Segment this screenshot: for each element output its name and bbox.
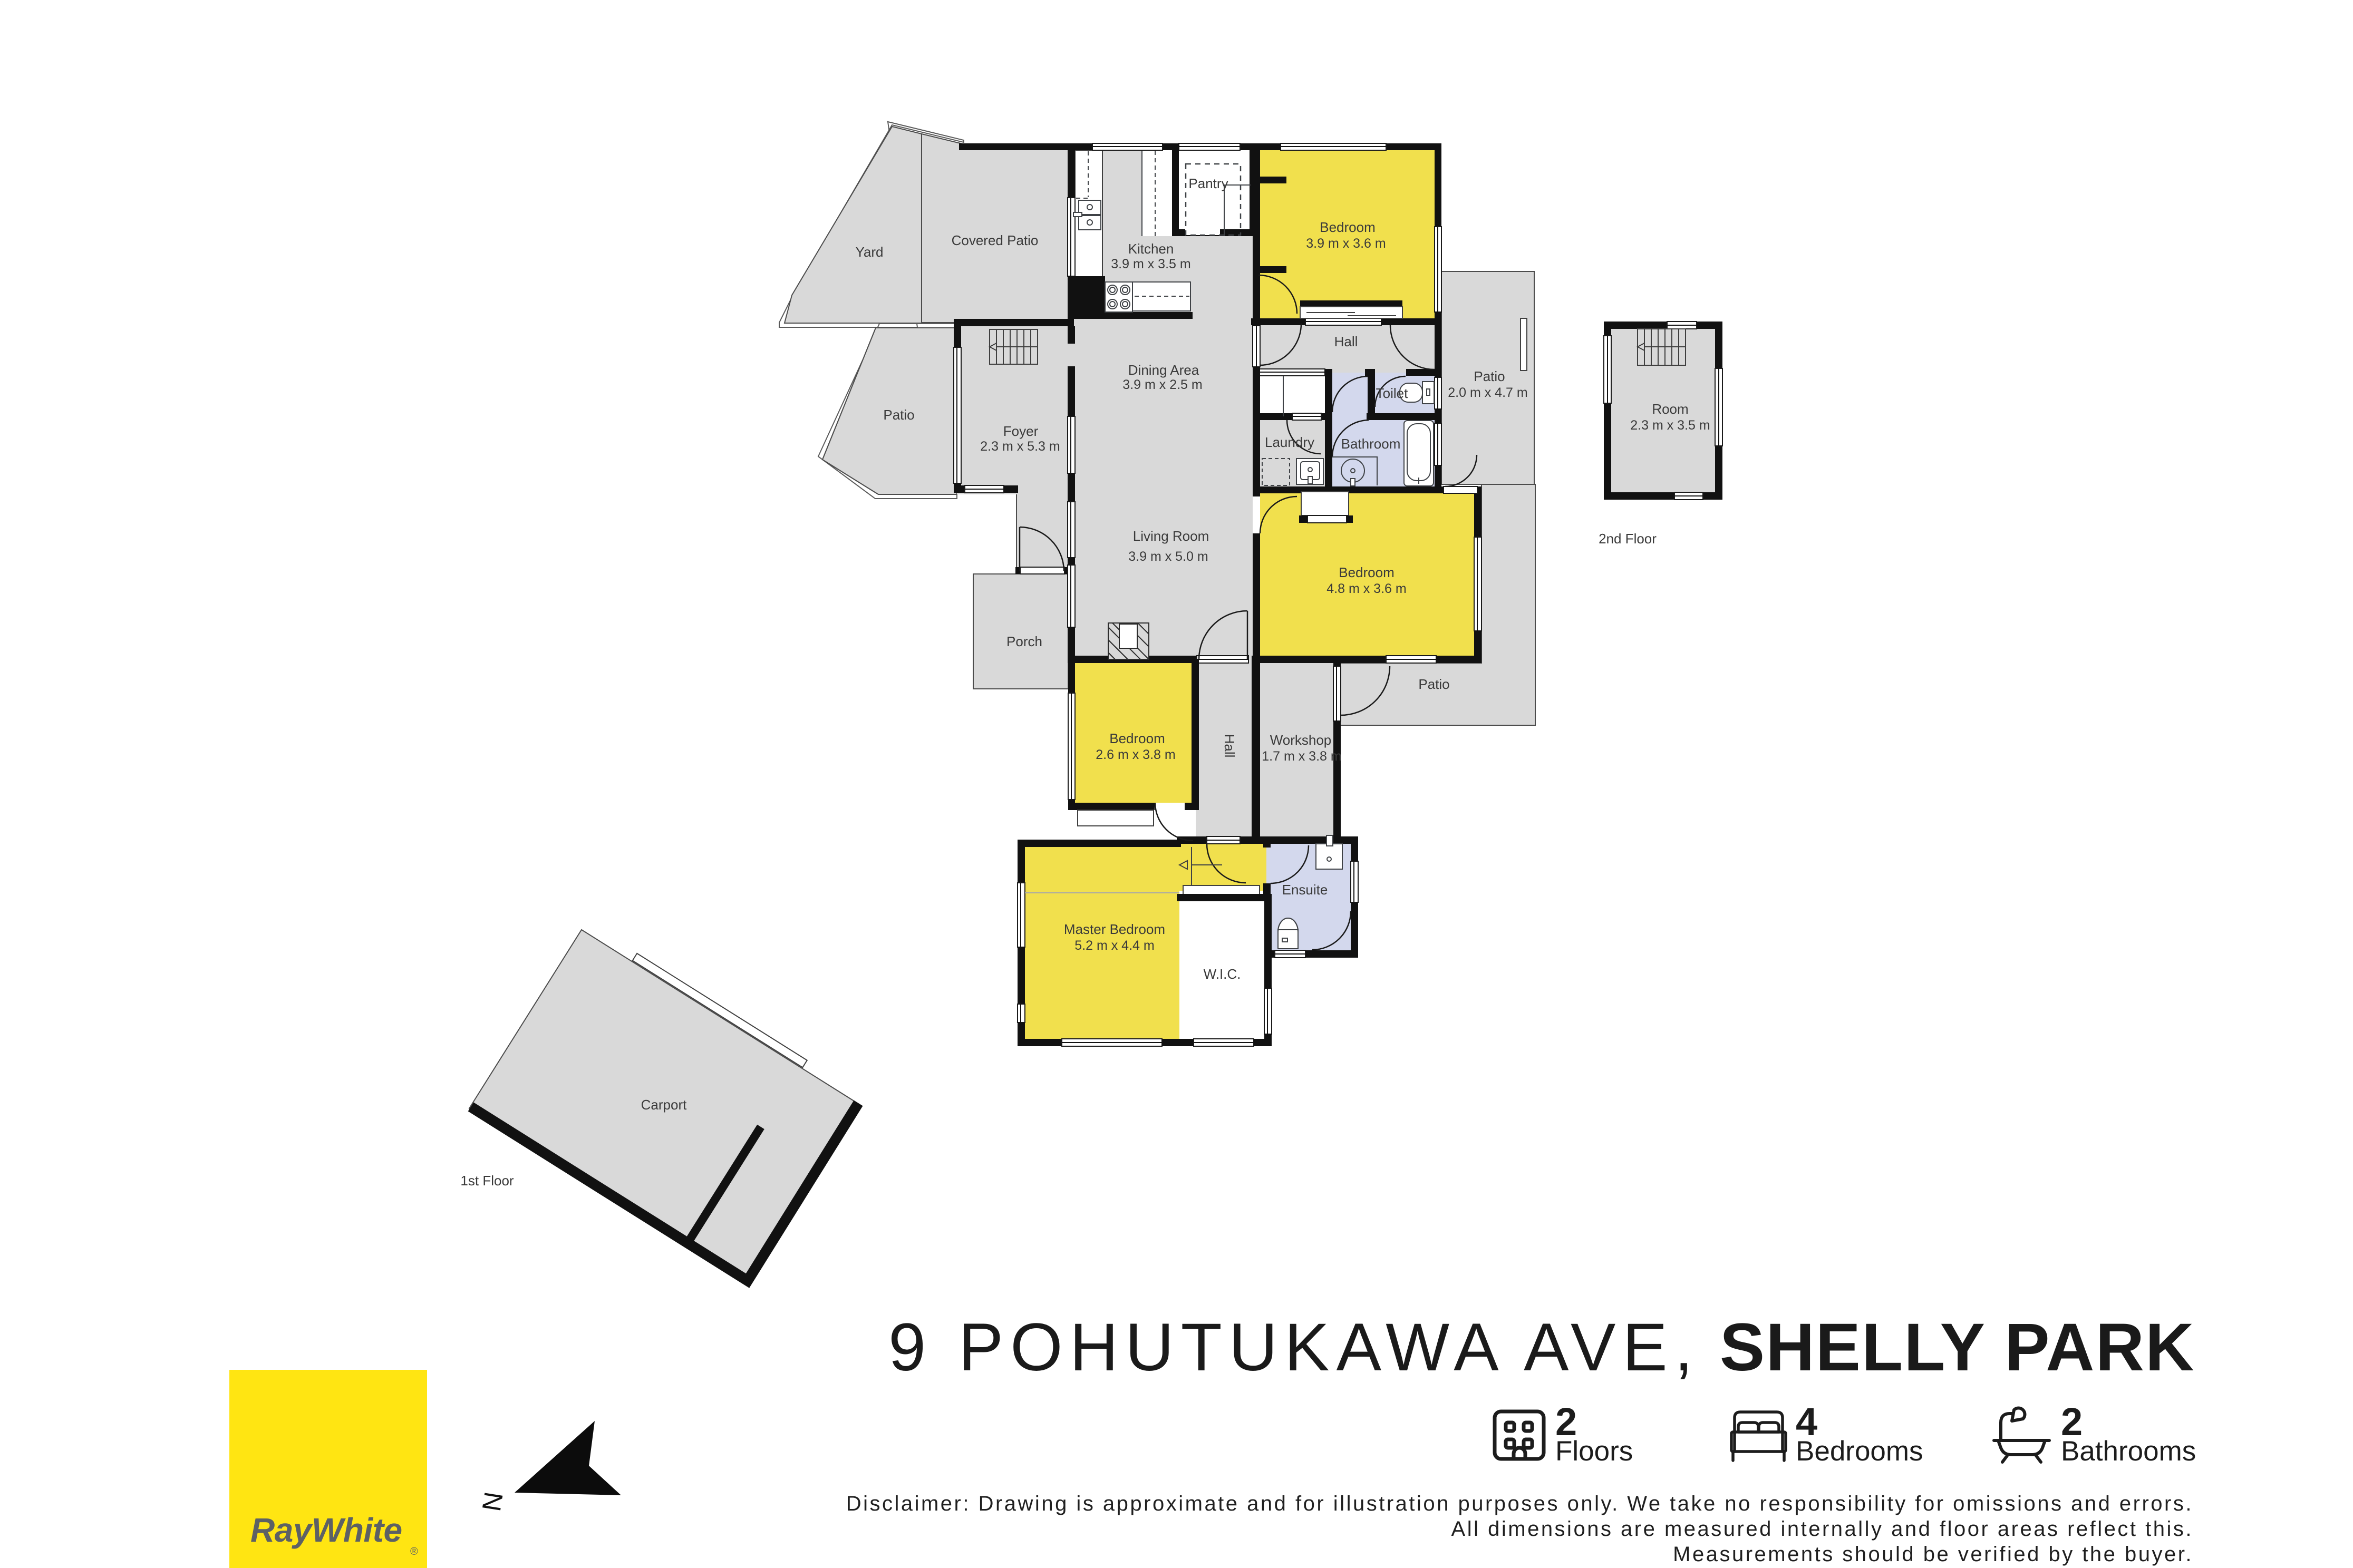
svg-text:Bedrooms: Bedrooms (1796, 1436, 1923, 1467)
svg-text:Living Room: Living Room (1133, 528, 1209, 544)
svg-text:Patio: Patio (883, 407, 914, 423)
svg-text:2.6 m x 3.8 m: 2.6 m x 3.8 m (1096, 747, 1175, 762)
svg-text:®: ® (410, 1546, 418, 1557)
svg-text:Hall: Hall (1334, 334, 1358, 349)
svg-text:1st Floor: 1st Floor (460, 1173, 514, 1189)
svg-text:All dimensions are measured in: All dimensions are measured internally a… (1451, 1517, 2193, 1541)
svg-text:RayWhite: RayWhite (250, 1511, 402, 1549)
svg-text:3.9 m x 2.5 m: 3.9 m x 2.5 m (1122, 377, 1202, 392)
svg-text:Ensuite: Ensuite (1282, 882, 1328, 898)
svg-text:3.9 m x 3.5 m: 3.9 m x 3.5 m (1111, 257, 1190, 271)
svg-text:3.9 m x 5.0 m: 3.9 m x 5.0 m (1128, 549, 1208, 564)
svg-text:2.0 m x 4.7 m: 2.0 m x 4.7 m (1448, 385, 1527, 400)
svg-text:3.9 m x 3.6 m: 3.9 m x 3.6 m (1306, 236, 1386, 251)
svg-text:2.3 m x 5.3 m: 2.3 m x 5.3 m (980, 439, 1060, 454)
svg-text:Covered Patio: Covered Patio (952, 232, 1039, 248)
svg-text:Disclaimer: Drawing is approxi: Disclaimer: Drawing is approximate and f… (846, 1492, 2193, 1515)
svg-text:Pantry: Pantry (1188, 176, 1228, 191)
svg-text:Dining Area: Dining Area (1128, 362, 1199, 378)
svg-text:Bathroom: Bathroom (1341, 436, 1401, 452)
svg-text:5.2 m x 4.4 m: 5.2 m x 4.4 m (1074, 938, 1154, 953)
svg-text:Bathrooms: Bathrooms (2061, 1436, 2196, 1467)
svg-text:Foyer: Foyer (1003, 423, 1039, 439)
svg-text:Room: Room (1652, 401, 1688, 417)
svg-text:Yard: Yard (856, 244, 884, 260)
svg-text:Patio: Patio (1474, 368, 1505, 384)
svg-text:Floors: Floors (1555, 1436, 1633, 1467)
svg-text:9 POHUTUKAWA AVE, SHELLY PARK: 9 POHUTUKAWA AVE, SHELLY PARK (888, 1310, 2195, 1385)
svg-text:W.I.C.: W.I.C. (1204, 966, 1241, 982)
svg-text:Toilet: Toilet (1376, 385, 1408, 401)
svg-text:Kitchen: Kitchen (1128, 241, 1174, 257)
svg-text:Bedroom: Bedroom (1109, 731, 1165, 746)
svg-text:Carport: Carport (641, 1097, 687, 1113)
svg-text:1.7 m x 3.8 m: 1.7 m x 3.8 m (1262, 749, 1341, 764)
svg-text:2.3 m x 3.5 m: 2.3 m x 3.5 m (1630, 418, 1710, 433)
svg-text:Patio: Patio (1418, 676, 1449, 692)
svg-text:Measurements should be verifie: Measurements should be verified by the b… (1673, 1543, 2193, 1566)
svg-text:Workshop: Workshop (1270, 732, 1332, 748)
svg-text:Laundry: Laundry (1265, 434, 1314, 450)
svg-text:4.8 m x 3.6 m: 4.8 m x 3.6 m (1326, 581, 1406, 596)
svg-text:2nd Floor: 2nd Floor (1599, 531, 1657, 547)
svg-text:Master Bedroom: Master Bedroom (1064, 921, 1165, 937)
svg-text:Bedroom: Bedroom (1320, 219, 1376, 235)
svg-text:Hall: Hall (1222, 734, 1237, 758)
svg-text:Bedroom: Bedroom (1339, 564, 1395, 580)
svg-text:Porch: Porch (1006, 634, 1042, 649)
